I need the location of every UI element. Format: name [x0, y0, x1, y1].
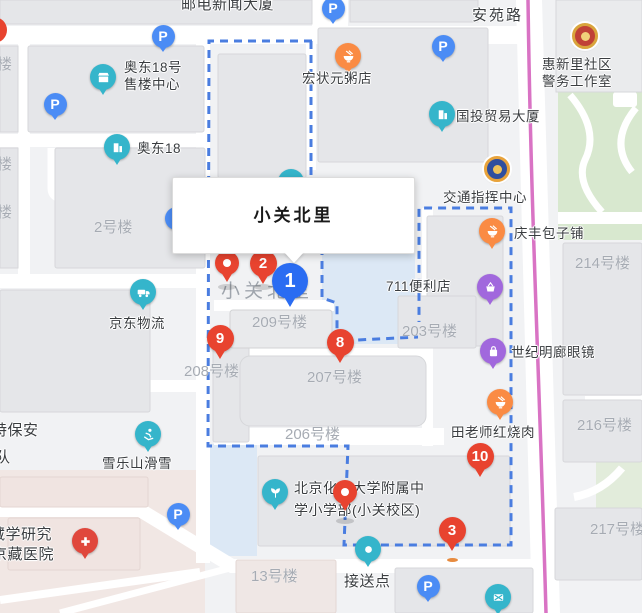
store-icon[interactable] [90, 64, 116, 90]
poi-label-711: 711便利店 [386, 278, 451, 295]
poi-label-xueleshan: 雪乐山滑雪 [102, 455, 172, 472]
building-label-209: 209号楼 [252, 314, 307, 332]
parking-icon[interactable]: P [417, 575, 440, 598]
parking-icon[interactable]: P [152, 25, 175, 48]
badge-core [572, 23, 598, 49]
bridge-icon[interactable] [485, 584, 511, 610]
poi-label-tebaoan: 特保安 [0, 422, 39, 439]
map-canvas[interactable]: 楼 楼 楼 2号楼 小关北里 209号楼 203号楼 208号楼 207号楼 2… [0, 0, 642, 613]
poi-label-line: 惠新里社区 [542, 56, 612, 73]
restaurant-icon[interactable] [479, 218, 505, 244]
convenience-store-icon[interactable] [477, 274, 503, 300]
building-label-partial: 楼 [0, 204, 12, 222]
restaurant-icon[interactable] [335, 43, 361, 69]
poi-label-huixinli: 惠新里社区 警务工作室 [542, 56, 612, 90]
poi-label-line: 奥东18号 [124, 59, 182, 76]
ski-icon[interactable] [135, 421, 161, 447]
poi-label-youdian-building: 邮电新闻大厦 [181, 0, 274, 13]
map-marker-9[interactable]: 9 [207, 325, 234, 352]
parking-icon[interactable]: P [167, 503, 190, 526]
parking-icon[interactable]: P [44, 93, 67, 116]
poi-label-school: 北京化工大学附属中 学小学部(小关校区) [294, 477, 425, 521]
info-bubble-title: 小关北里 [254, 207, 334, 224]
building-label-206: 206号楼 [285, 426, 340, 444]
poi-label-tianlaoshi: 田老师红烧肉 [451, 424, 535, 441]
parking-icon[interactable]: P [322, 0, 345, 20]
pickup-point-icon[interactable] [355, 536, 381, 562]
building-icon[interactable] [429, 101, 455, 127]
poi-label-shiji-glasses: 世纪明廊眼镜 [511, 344, 595, 361]
poi-label-zangxue: 藏学研究 [0, 526, 52, 543]
truck-icon[interactable] [130, 279, 156, 305]
building-icon[interactable] [104, 134, 130, 160]
poi-label-line: 售楼中心 [124, 76, 182, 93]
building-label-208: 208号楼 [184, 363, 239, 381]
building-label-216: 216号楼 [577, 417, 632, 435]
poi-label-jiesongdian: 接送点 [344, 573, 391, 590]
parking-icon[interactable]: P [432, 35, 455, 58]
building-label-2: 2号楼 [94, 219, 132, 237]
building-label-13: 13号楼 [251, 568, 298, 586]
poi-label-aodong-sales: 奥东18号 售楼中心 [124, 59, 182, 93]
poi-label-jingdong: 京东物流 [109, 315, 165, 332]
poi-label-qingfeng: 庆丰包子铺 [514, 225, 584, 242]
school-icon[interactable] [262, 479, 288, 505]
poi-label-jiaotong: 交通指挥中心 [443, 189, 527, 206]
map-marker-10[interactable]: 10 [467, 443, 494, 470]
building-label-217: 217号楼 [590, 521, 642, 539]
poi-label-aodong18: 奥东18 [137, 140, 181, 157]
map-marker-8[interactable]: 8 [327, 329, 354, 356]
restaurant-icon[interactable] [487, 389, 513, 415]
badge-core [484, 156, 510, 182]
poi-label-line: 警务工作室 [542, 73, 612, 90]
poi-label-line: 北京化工大学附属中 [294, 477, 425, 499]
hospital-icon[interactable] [72, 528, 98, 554]
poi-label-tebaoan-2: 队 [0, 449, 11, 466]
building-label-partial: 楼 [0, 156, 12, 174]
building-label-partial: 楼 [0, 56, 12, 74]
building-label-214: 214号楼 [575, 255, 630, 273]
info-bubble[interactable]: 小关北里 [172, 177, 415, 254]
badge-emblem [581, 32, 590, 41]
police-badge-icon[interactable] [572, 23, 598, 49]
marker-ground-tick [447, 558, 458, 562]
building-label-207: 207号楼 [307, 369, 362, 387]
poi-label-hongzhuangyuan: 宏状元粥店 [302, 70, 372, 87]
info-bubble-arrow [284, 252, 304, 263]
map-marker-3[interactable]: 3 [439, 517, 466, 544]
poi-label-line: 学小学部(小关校区) [294, 499, 425, 521]
road-label-anyuan: 安苑路 [472, 7, 523, 24]
map-marker-1-selected[interactable]: 1 [272, 263, 308, 299]
map-base-layer [0, 0, 642, 613]
map-marker-plain[interactable] [215, 251, 239, 275]
poi-label-guotou: 国投贸易大厦 [456, 108, 540, 125]
poi-label-jingzang: 京藏医院 [0, 546, 54, 563]
traffic-badge-icon[interactable] [484, 156, 510, 182]
map-marker-plain[interactable] [333, 480, 357, 504]
shopping-bag-icon[interactable] [480, 338, 506, 364]
building-label-203: 203号楼 [402, 323, 457, 341]
badge-emblem [493, 165, 502, 174]
